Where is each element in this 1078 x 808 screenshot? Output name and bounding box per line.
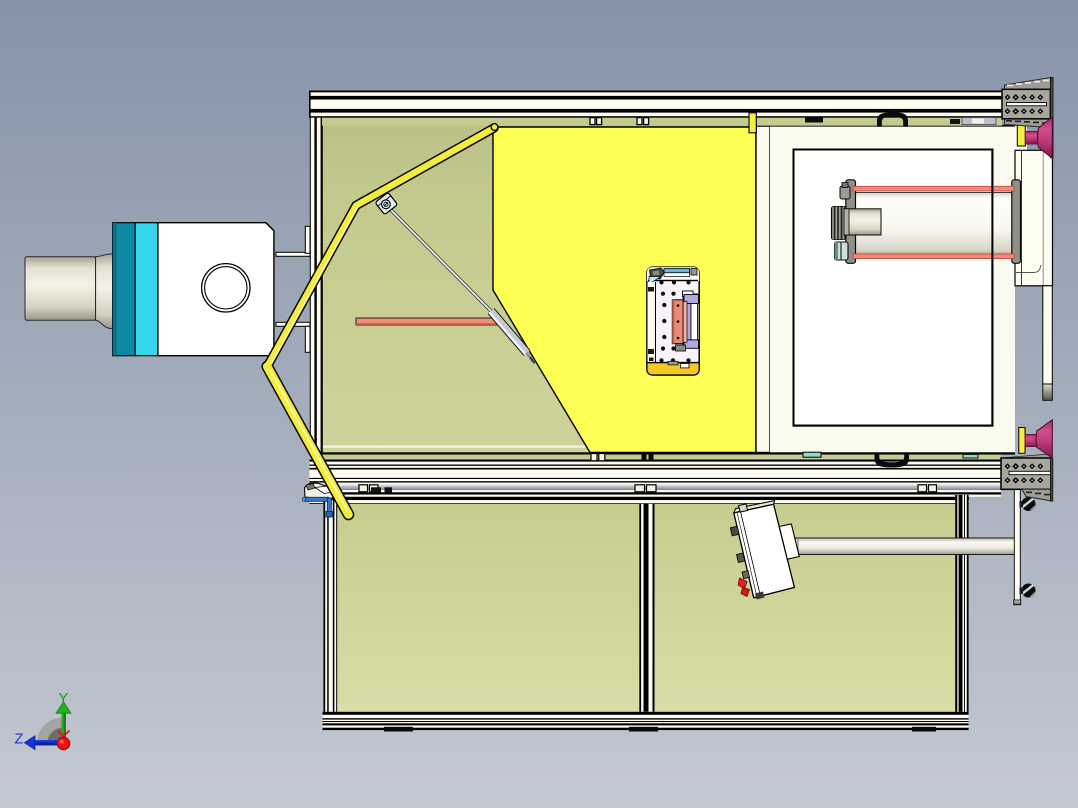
svg-text:Y: Y — [59, 691, 69, 707]
svg-text:Z: Z — [15, 732, 24, 748]
